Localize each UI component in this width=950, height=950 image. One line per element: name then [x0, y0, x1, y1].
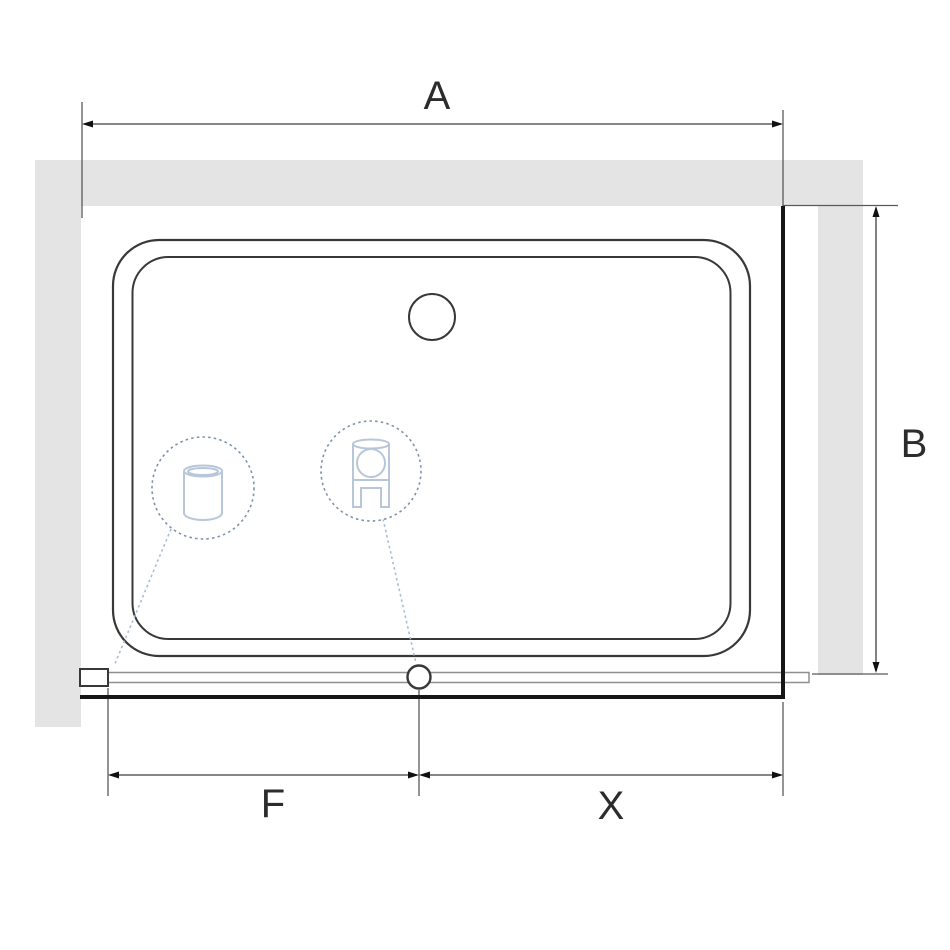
left-wall: [35, 160, 81, 727]
callout-leaders: [114, 519, 416, 666]
label-overall-depth: B: [901, 422, 928, 466]
door-rail: [108, 673, 809, 683]
door-knob: [408, 666, 431, 689]
arrow-f-left: [108, 772, 119, 779]
shower-enclosure-technical-drawing: A B F X: [0, 0, 950, 950]
arrow-b-down: [873, 662, 880, 673]
arrow-x-left: [419, 772, 430, 779]
walls: [35, 160, 863, 727]
wall-profile: [80, 669, 108, 686]
leader-roller: [383, 519, 416, 663]
arrow-a-right: [772, 121, 783, 128]
right-wall: [818, 206, 863, 675]
arrow-a-left: [82, 121, 93, 128]
label-door-segment: X: [598, 784, 625, 828]
label-fixed-segment: F: [261, 782, 285, 826]
arrow-x-right: [772, 772, 783, 779]
top-wall: [35, 160, 863, 206]
drain-circle: [409, 294, 455, 340]
arrow-f-right: [408, 772, 419, 779]
callout-circle-wall-profile: [152, 437, 254, 539]
label-overall-width: A: [424, 74, 451, 118]
arrow-b-up: [873, 206, 880, 217]
rail-track: [108, 673, 809, 683]
callout-circle-roller: [321, 421, 421, 521]
leader-wall-profile: [114, 529, 171, 666]
